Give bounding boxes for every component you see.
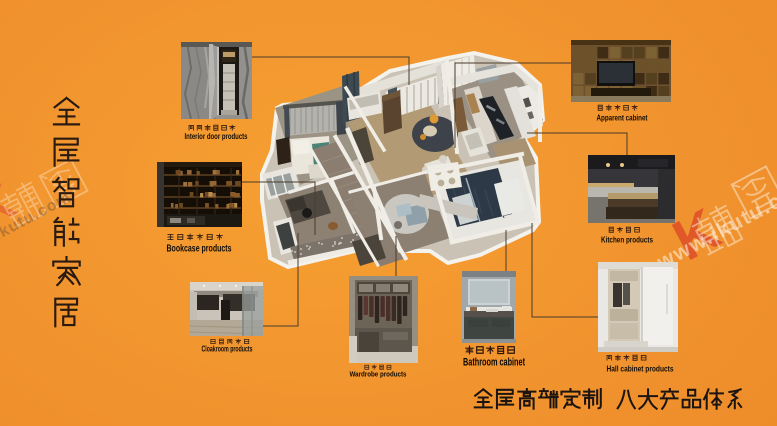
svg-text:Bookcase products: Bookcase products <box>167 244 232 255</box>
svg-text:Bathroom cabinet: Bathroom cabinet <box>463 357 525 369</box>
svg-text:Interior door products: Interior door products <box>185 131 248 141</box>
svg-text:Kitchen products: Kitchen products <box>601 235 653 245</box>
svg-text:Apparent cabinet: Apparent cabinet <box>597 113 648 123</box>
svg-text:Hall cabinet products: Hall cabinet products <box>607 364 674 374</box>
svg-text:Cloakroom products: Cloakroom products <box>202 345 253 354</box>
svg-text:Wardrobe products: Wardrobe products <box>350 370 407 379</box>
